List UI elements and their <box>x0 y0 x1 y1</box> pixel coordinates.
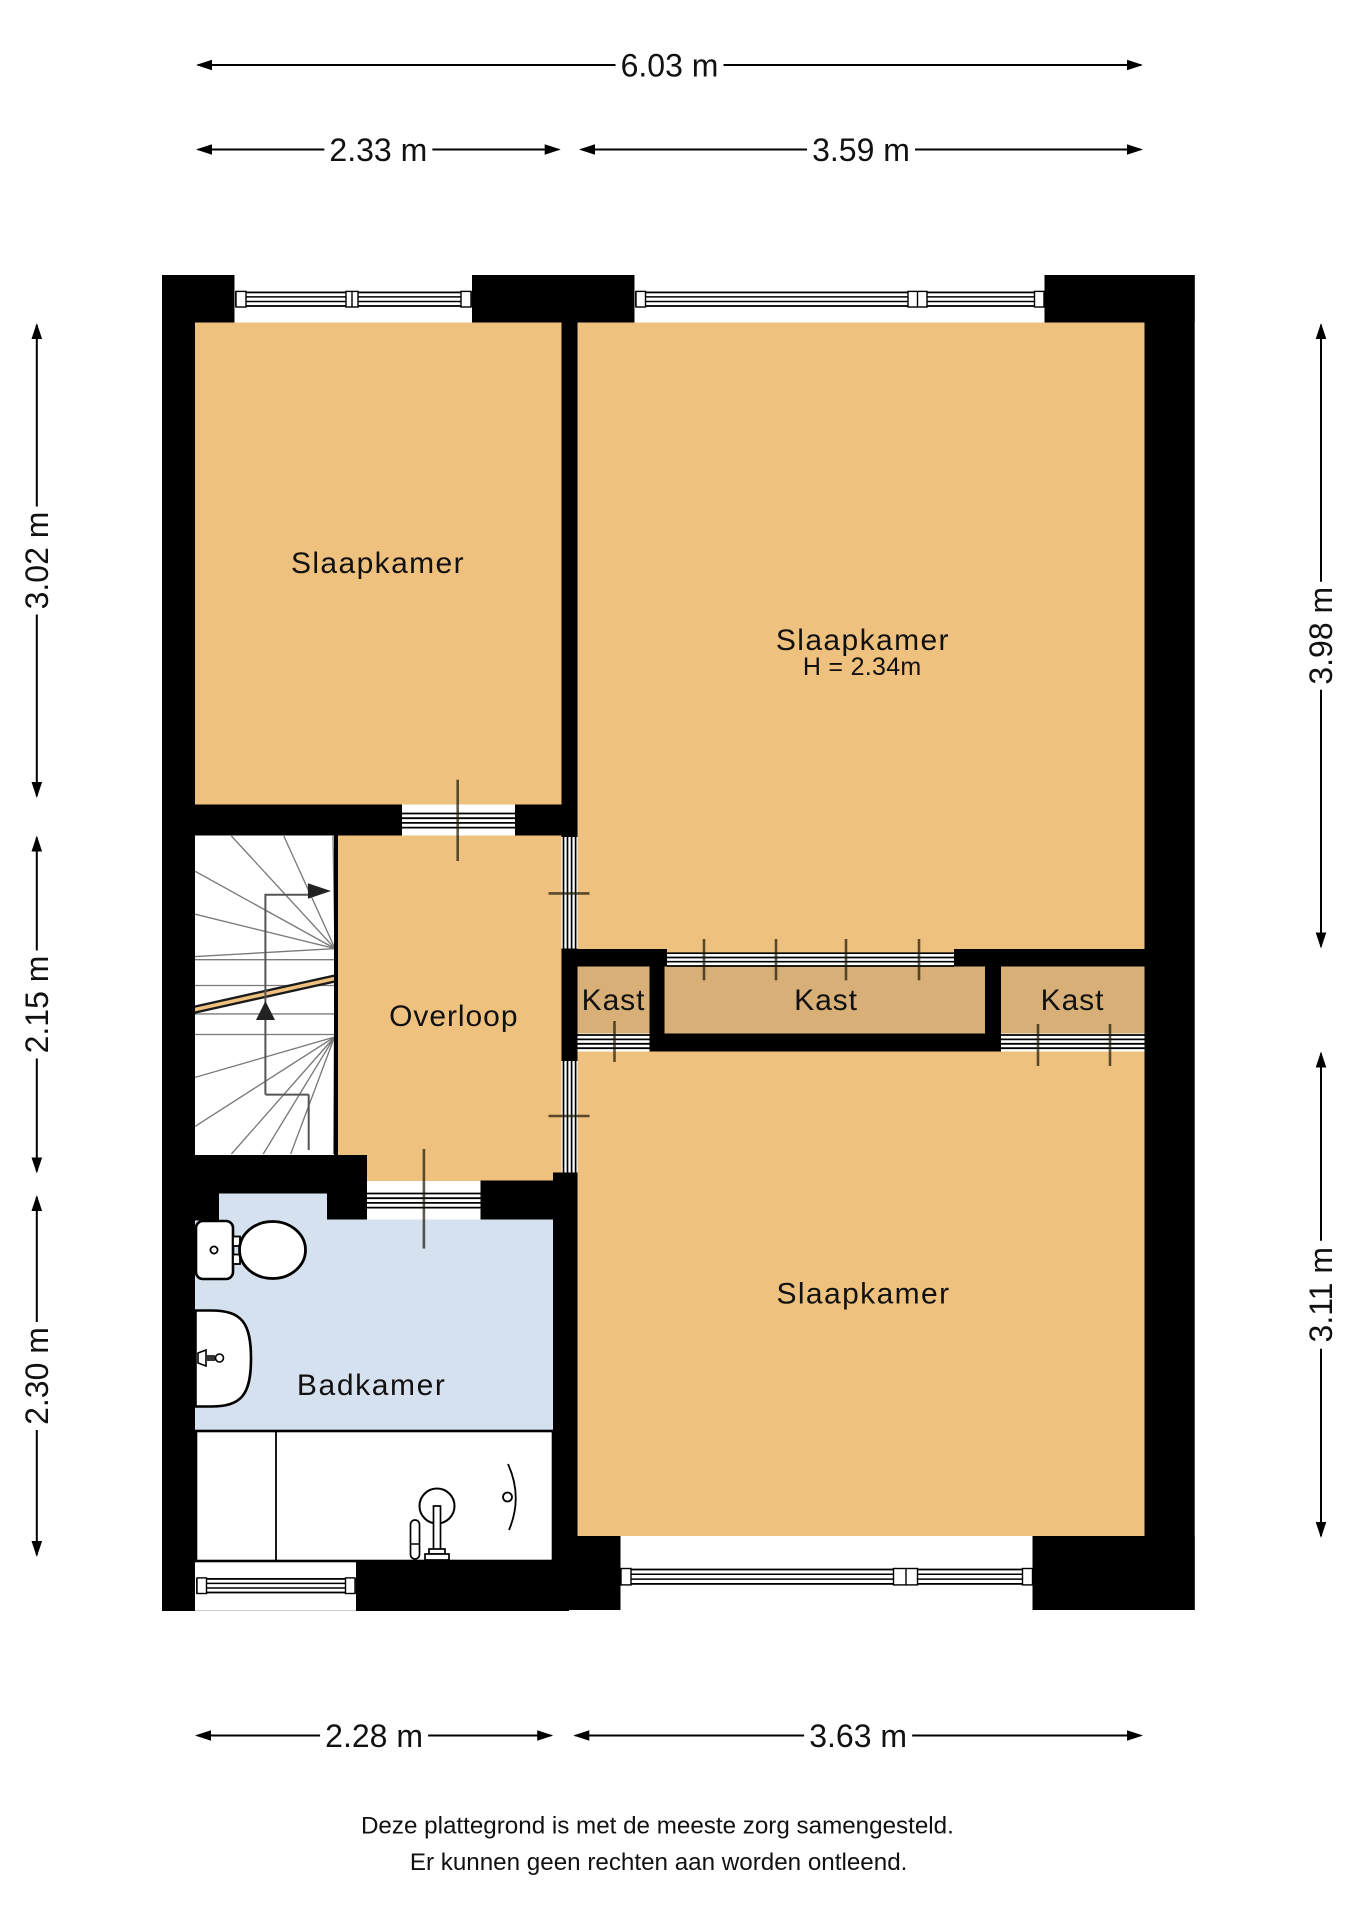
svg-text:Slaapkamer: Slaapkamer <box>776 1278 950 1311</box>
svg-text:Slaapkamer: Slaapkamer <box>291 547 465 580</box>
svg-text:Kast: Kast <box>794 984 858 1017</box>
svg-text:3.63 m: 3.63 m <box>809 1718 907 1754</box>
svg-text:3.98 m: 3.98 m <box>1303 587 1339 685</box>
svg-text:Kast: Kast <box>1041 984 1105 1017</box>
svg-text:3.11 m: 3.11 m <box>1303 1247 1339 1342</box>
svg-text:2.30 m: 2.30 m <box>19 1327 55 1425</box>
svg-text:6.03 m: 6.03 m <box>621 48 719 84</box>
svg-text:Badkamer: Badkamer <box>297 1369 447 1402</box>
svg-text:Deze plattegrond is met de mee: Deze plattegrond is met de meeste zorg s… <box>361 1812 954 1839</box>
svg-text:2.15 m: 2.15 m <box>19 956 55 1054</box>
svg-text:3.02 m: 3.02 m <box>19 512 55 610</box>
svg-text:3.59 m: 3.59 m <box>812 132 910 168</box>
svg-text:Er kunnen geen rechten aan wor: Er kunnen geen rechten aan worden ontlee… <box>410 1849 908 1876</box>
svg-text:Kast: Kast <box>582 984 646 1017</box>
svg-text:2.28 m: 2.28 m <box>325 1718 423 1754</box>
svg-text:H = 2.34m: H = 2.34m <box>803 653 922 681</box>
svg-text:Overloop: Overloop <box>389 1000 518 1033</box>
svg-text:2.33 m: 2.33 m <box>329 132 427 168</box>
